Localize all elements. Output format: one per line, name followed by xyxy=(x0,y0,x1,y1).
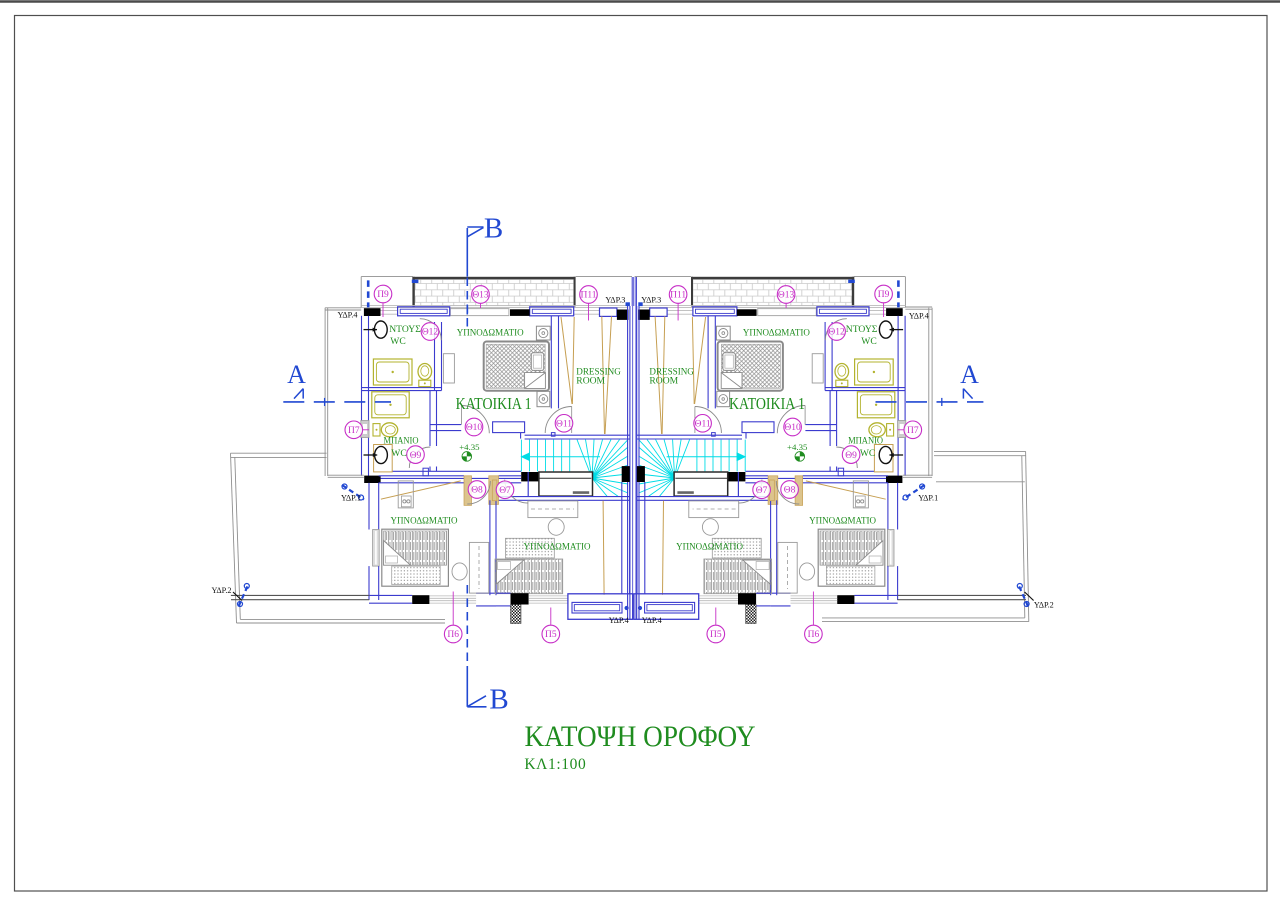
svg-text:WC: WC xyxy=(390,336,405,347)
svg-text:ΥΠΝΟΔΩΜΑΤΙΟ: ΥΠΝΟΔΩΜΑΤΙΟ xyxy=(391,515,458,526)
svg-text:ROOM: ROOM xyxy=(576,376,605,387)
svg-text:Θ11: Θ11 xyxy=(556,420,572,430)
svg-text:A: A xyxy=(287,360,306,389)
svg-text:Π7: Π7 xyxy=(907,426,919,436)
svg-text:ΥΔΡ.1: ΥΔΡ.1 xyxy=(341,493,361,502)
svg-text:ΚΛ1:100: ΚΛ1:100 xyxy=(524,756,586,773)
svg-text:ΥΔΡ.3: ΥΔΡ.3 xyxy=(641,295,661,304)
svg-text:Θ10: Θ10 xyxy=(784,423,801,433)
svg-text:ΥΔΡ.4: ΥΔΡ.4 xyxy=(642,616,662,625)
svg-text:Θ12: Θ12 xyxy=(422,328,439,338)
svg-text:ΥΔΡ.2: ΥΔΡ.2 xyxy=(212,586,232,595)
svg-text:ΥΠΝΟΔΩΜΑΤΙΟ: ΥΠΝΟΔΩΜΑΤΙΟ xyxy=(809,515,876,526)
svg-text:Π11: Π11 xyxy=(670,291,686,301)
svg-text:ΚΑΤΟΨΗ ΟΡΟΦΟΥ: ΚΑΤΟΨΗ ΟΡΟΦΟΥ xyxy=(525,720,756,753)
svg-text:Θ8: Θ8 xyxy=(784,486,796,496)
svg-text:ΝΤΟΥΣ: ΝΤΟΥΣ xyxy=(389,324,421,335)
svg-text:Θ13: Θ13 xyxy=(778,291,795,301)
svg-text:ΥΔΡ.4: ΥΔΡ.4 xyxy=(609,616,629,625)
svg-text:WC: WC xyxy=(861,336,876,347)
svg-text:Π5: Π5 xyxy=(545,630,557,640)
svg-text:+4.35: +4.35 xyxy=(787,442,808,452)
svg-text:ΚΑΤΟΙΚΙΑ 1: ΚΑΤΟΙΚΙΑ 1 xyxy=(729,394,805,413)
svg-text:Θ9: Θ9 xyxy=(845,451,857,461)
svg-text:+4.35: +4.35 xyxy=(459,442,480,452)
svg-text:Π5: Π5 xyxy=(710,630,722,640)
svg-text:ROOM: ROOM xyxy=(649,376,678,387)
svg-text:Θ7: Θ7 xyxy=(756,486,768,496)
svg-text:ΚΑΤΟΙΚΙΑ 1: ΚΑΤΟΙΚΙΑ 1 xyxy=(456,394,532,413)
svg-text:Θ9: Θ9 xyxy=(410,451,422,461)
svg-text:Π9: Π9 xyxy=(878,290,890,300)
svg-text:A: A xyxy=(960,360,979,389)
svg-text:ΥΔΡ.4: ΥΔΡ.4 xyxy=(338,311,358,320)
svg-text:ΥΠΝΟΔΩΜΑΤΙΟ: ΥΠΝΟΔΩΜΑΤΙΟ xyxy=(524,541,591,552)
svg-text:ΥΠΝΟΔΩΜΑΤΙΟ: ΥΠΝΟΔΩΜΑΤΙΟ xyxy=(743,327,810,338)
svg-text:Θ11: Θ11 xyxy=(695,420,711,430)
svg-text:Θ7: Θ7 xyxy=(499,486,511,496)
svg-text:Θ13: Θ13 xyxy=(472,291,489,301)
svg-text:ΝΤΟΥΣ: ΝΤΟΥΣ xyxy=(846,324,878,335)
svg-text:Π6: Π6 xyxy=(808,630,820,640)
svg-text:ΥΔΡ.2: ΥΔΡ.2 xyxy=(1034,601,1054,610)
svg-text:Π9: Π9 xyxy=(377,290,389,300)
svg-text:Π7: Π7 xyxy=(348,426,360,436)
svg-text:Θ10: Θ10 xyxy=(466,423,483,433)
svg-text:Π6: Π6 xyxy=(447,630,459,640)
svg-text:WC: WC xyxy=(391,448,406,459)
svg-text:ΥΔΡ.4: ΥΔΡ.4 xyxy=(909,312,929,321)
svg-text:Θ8: Θ8 xyxy=(471,486,483,496)
svg-text:Θ12: Θ12 xyxy=(828,328,845,338)
svg-text:ΥΔΡ.1: ΥΔΡ.1 xyxy=(918,493,938,502)
svg-text:Π11: Π11 xyxy=(580,291,596,301)
svg-text:B: B xyxy=(489,684,508,716)
svg-text:ΜΠΑΝΙΟ: ΜΠΑΝΙΟ xyxy=(848,436,883,447)
svg-text:ΜΠΑΝΙΟ: ΜΠΑΝΙΟ xyxy=(384,436,419,447)
svg-text:ΥΔΡ.3: ΥΔΡ.3 xyxy=(605,295,625,304)
svg-text:B: B xyxy=(484,213,503,245)
svg-text:ΥΠΝΟΔΩΜΑΤΙΟ: ΥΠΝΟΔΩΜΑΤΙΟ xyxy=(676,541,743,552)
svg-text:ΥΠΝΟΔΩΜΑΤΙΟ: ΥΠΝΟΔΩΜΑΤΙΟ xyxy=(457,327,524,338)
svg-text:WC: WC xyxy=(860,448,875,459)
